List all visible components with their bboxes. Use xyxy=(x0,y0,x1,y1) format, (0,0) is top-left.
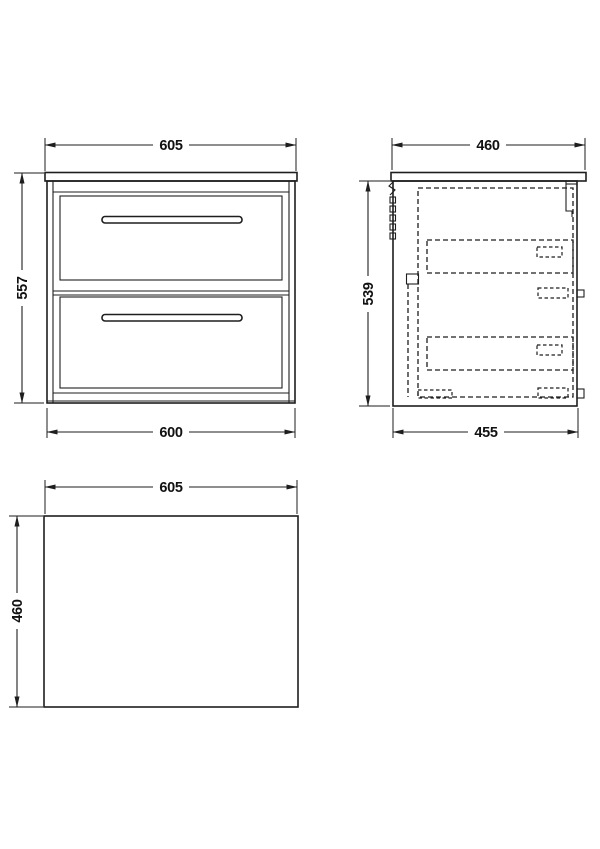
drawer-handle-bottom xyxy=(102,315,242,322)
plan-left-dimension: 460 xyxy=(9,516,43,707)
plan-depth-value: 460 xyxy=(10,599,26,623)
drawer-handle-top xyxy=(102,217,242,224)
countertop-front xyxy=(45,173,297,182)
front-width-top-value: 605 xyxy=(159,138,183,154)
drawer-box-bottom-hidden xyxy=(427,337,573,370)
side-bottom-dimension: 455 xyxy=(393,408,578,441)
lower-bracket xyxy=(407,274,419,284)
front-bottom-dimension: 600 xyxy=(47,408,295,441)
countertop-plan-outline xyxy=(44,516,298,707)
side-depth-top-value: 460 xyxy=(476,138,500,154)
plan-width-value: 605 xyxy=(159,480,183,496)
fixing-tab-bottom xyxy=(577,389,584,398)
front-top-dimension: 605 xyxy=(45,137,296,171)
side-height-value: 539 xyxy=(361,282,377,306)
front-left-dimension: 557 xyxy=(14,173,44,403)
runner-hidden-bottom xyxy=(537,345,562,355)
drawer-box-top-hidden xyxy=(427,240,573,273)
drawer-front-top xyxy=(60,196,282,280)
fixing-tab-middle xyxy=(577,290,584,297)
drawer-front-bottom xyxy=(60,297,282,388)
cabinet-body-side xyxy=(393,181,577,406)
carcass-hidden-outline xyxy=(418,188,573,397)
rear-fixing-bracket xyxy=(566,181,577,217)
side-left-dimension: 539 xyxy=(359,181,390,406)
front-view: 605 557 600 xyxy=(14,137,297,441)
runner-hidden-top xyxy=(537,247,562,257)
bracket-outline xyxy=(566,181,572,217)
side-view: 460 xyxy=(359,137,586,441)
technical-drawing: 605 557 600 xyxy=(0,0,600,849)
plan-top-dimension: 605 xyxy=(45,479,297,514)
plan-view: 605 460 xyxy=(9,479,298,707)
front-width-bottom-value: 600 xyxy=(159,425,183,441)
countertop-side xyxy=(391,173,586,182)
front-height-value: 557 xyxy=(15,276,31,300)
side-depth-bottom-value: 455 xyxy=(474,425,498,441)
side-top-dimension: 460 xyxy=(392,137,585,170)
runner-hidden-middle xyxy=(538,288,568,298)
drawing-page: 605 557 600 xyxy=(0,0,600,849)
cabinet-body-front xyxy=(47,181,295,403)
bracket-hook xyxy=(389,181,395,195)
